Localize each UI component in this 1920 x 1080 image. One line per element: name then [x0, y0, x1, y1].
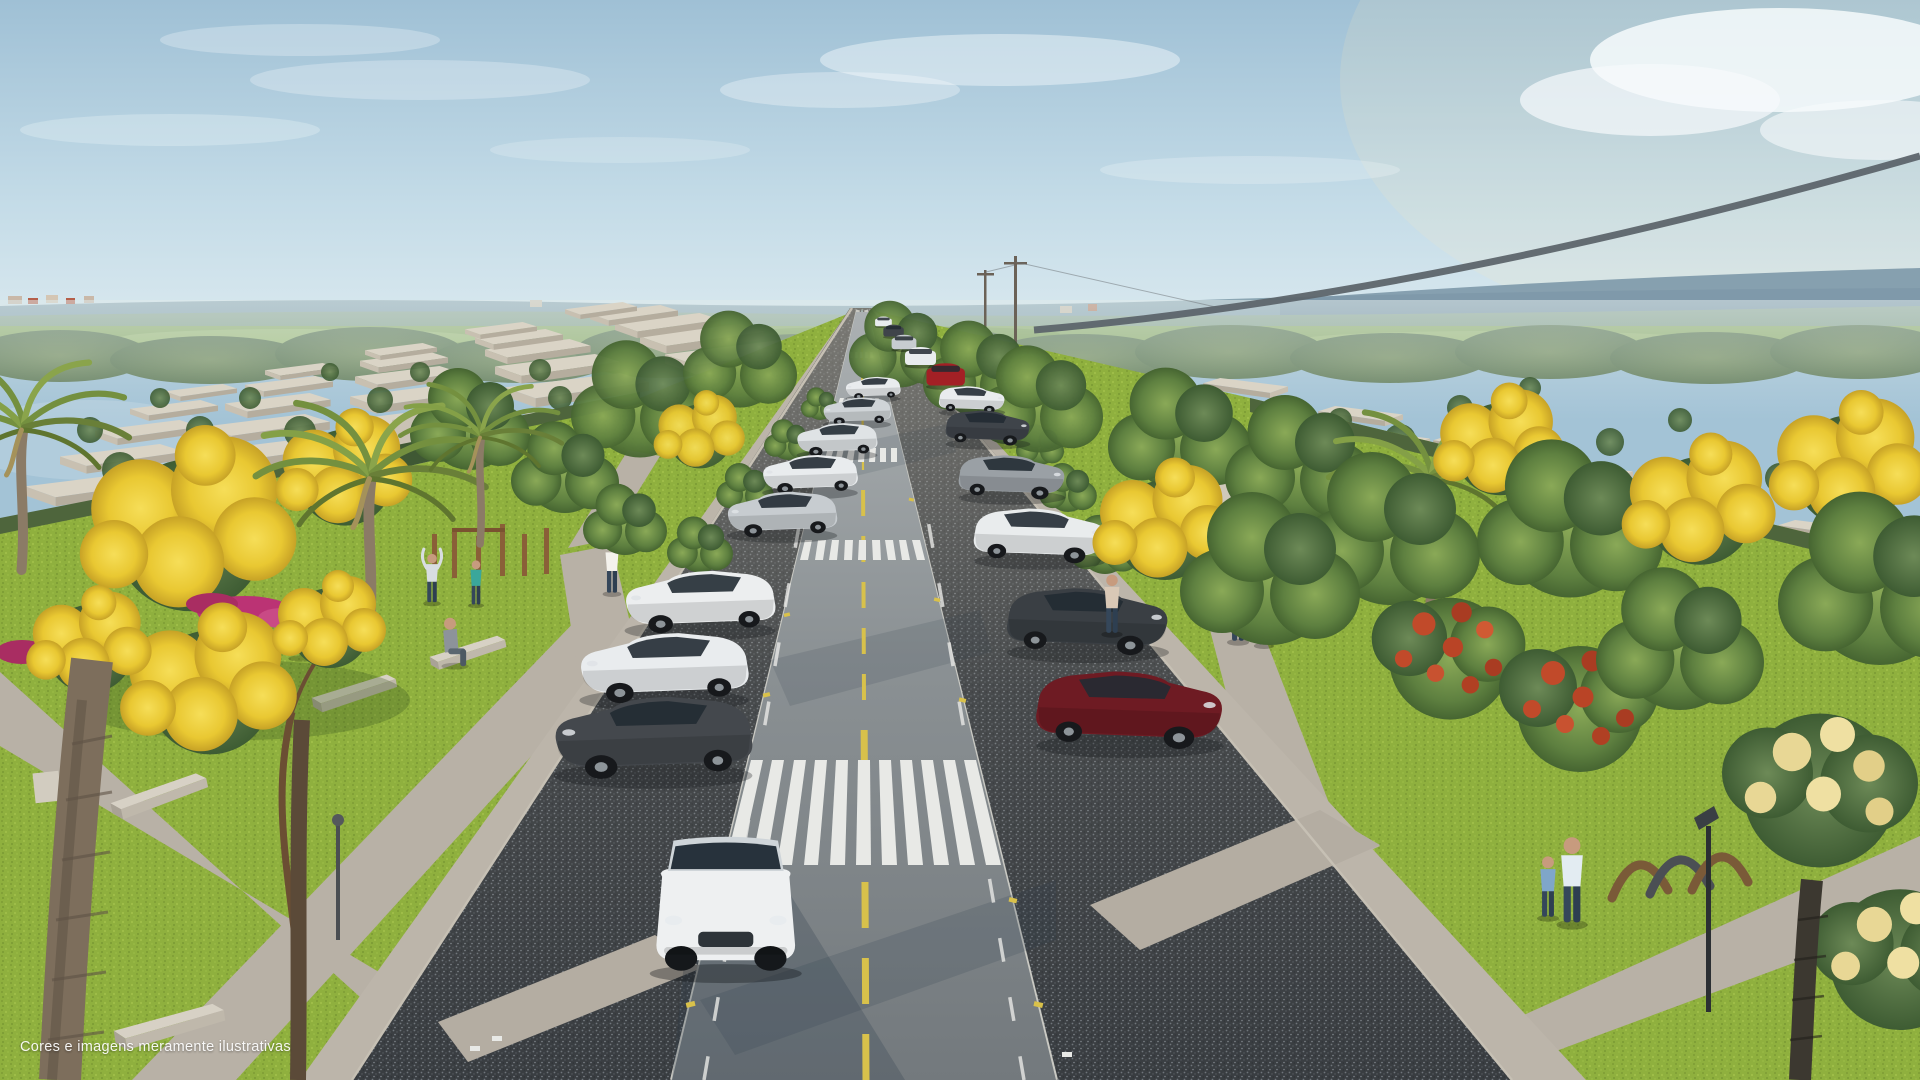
render-image: Cores e imagens meramente ilustrativas — [0, 0, 1920, 1080]
palm-trunk-right — [1800, 880, 1812, 1080]
car-red — [926, 363, 966, 390]
crosswalk-mid — [800, 540, 925, 560]
planter-cube — [33, 771, 62, 804]
scene-canvas — [0, 0, 1920, 1080]
disclaimer-caption: Cores e imagens meramente ilustrativas — [20, 1040, 291, 1055]
